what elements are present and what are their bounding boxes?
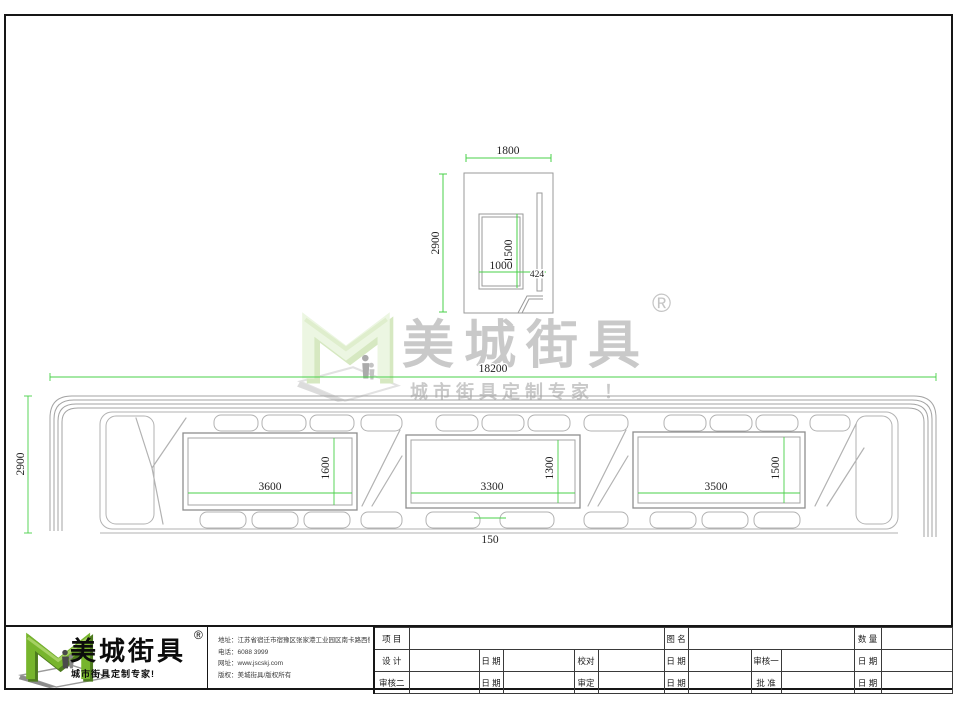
logo-person-body [62, 657, 69, 669]
date-label: 日 期 [854, 672, 881, 694]
title-block-divider [207, 627, 208, 690]
registered-icon: ® [194, 628, 203, 642]
side-view-dim-lines [439, 154, 551, 312]
approve-value [598, 672, 664, 694]
proofread-label: 校对 [574, 650, 598, 672]
title-block: 美城街具 ® 城市街具定制专家! 地址：江苏省宿迁市宿豫区张家港工业园区南卡路西… [6, 625, 953, 688]
company-address: 地址：江苏省宿迁市宿豫区张家港工业园区南卡路西侧1号 [218, 635, 370, 647]
panel1-height-dim: 1600 [320, 456, 332, 479]
table-row: 项 目 图 名 数 量 [374, 628, 952, 650]
review2-value [409, 672, 479, 694]
elevation-height-dim: 2900 [15, 452, 27, 475]
company-phone: 电话：6088 3999 [218, 647, 370, 659]
date-value [503, 650, 574, 672]
company-website: 网址：www.jscskj.com [218, 658, 370, 670]
gap-dim: 150 [481, 534, 499, 546]
ratify-value [781, 672, 854, 694]
logo-person-icon [62, 650, 68, 656]
drawing-name-value [688, 628, 854, 650]
date-label: 日 期 [664, 672, 688, 694]
side-height-dim: 2900 [430, 231, 442, 254]
date-value [688, 672, 751, 694]
panel3-height-dim: 1500 [770, 456, 782, 479]
panel1-width-dim: 3600 [259, 481, 282, 493]
date-value [503, 672, 574, 694]
project-label: 项 目 [374, 628, 409, 650]
project-value [409, 628, 664, 650]
drawing-name-label: 图 名 [664, 628, 688, 650]
table-row: 审核二 日 期 审定 日 期 批 准 日 期 [374, 672, 952, 694]
design-label: 设 计 [374, 650, 409, 672]
company-brand: 美城街具 [70, 631, 186, 668]
date-label: 日 期 [854, 650, 881, 672]
ratify-label: 批 准 [751, 672, 781, 694]
company-info: 地址：江苏省宿迁市宿豫区张家港工业园区南卡路西侧1号 电话：6088 3999 … [218, 635, 370, 681]
company-tagline: 城市街具定制专家! [71, 667, 155, 680]
company-copyright: 版权：美城街具/版权所有 [218, 670, 370, 682]
proofread-value [598, 650, 664, 672]
design-value [409, 650, 479, 672]
side-panel-height-dim: 1500 [503, 239, 515, 262]
panel3-width-dim: 3500 [705, 481, 728, 493]
date-label: 日 期 [479, 672, 503, 694]
table-row: 设 计 日 期 校对 日 期 审核一 日 期 [374, 650, 952, 672]
side-offset-dim: 424 [530, 270, 545, 280]
date-label: 日 期 [479, 650, 503, 672]
side-width-dim: 1800 [497, 145, 520, 157]
date-value [688, 650, 751, 672]
review1-label: 审核一 [751, 650, 781, 672]
panel2-width-dim: 3300 [481, 481, 504, 493]
elevation-dim-lines [24, 373, 936, 533]
cad-drawing: 1800 2900 1500 1000 424 [0, 0, 960, 624]
side-panel-width-dim: 1000 [490, 260, 513, 272]
quantity-value [881, 628, 952, 650]
date-value [881, 650, 952, 672]
approve-label: 审定 [574, 672, 598, 694]
elevation-total-width-dim: 18200 [479, 363, 508, 375]
panel2-height-dim: 1300 [544, 456, 556, 479]
date-value [881, 672, 952, 694]
date-label: 日 期 [664, 650, 688, 672]
drawing-info-table: 项 目 图 名 数 量 设 计 日 期 校对 日 期 审核一 日 期 审核二 日… [373, 627, 953, 694]
review1-value [781, 650, 854, 672]
quantity-label: 数 量 [854, 628, 881, 650]
review2-label: 审核二 [374, 672, 409, 694]
